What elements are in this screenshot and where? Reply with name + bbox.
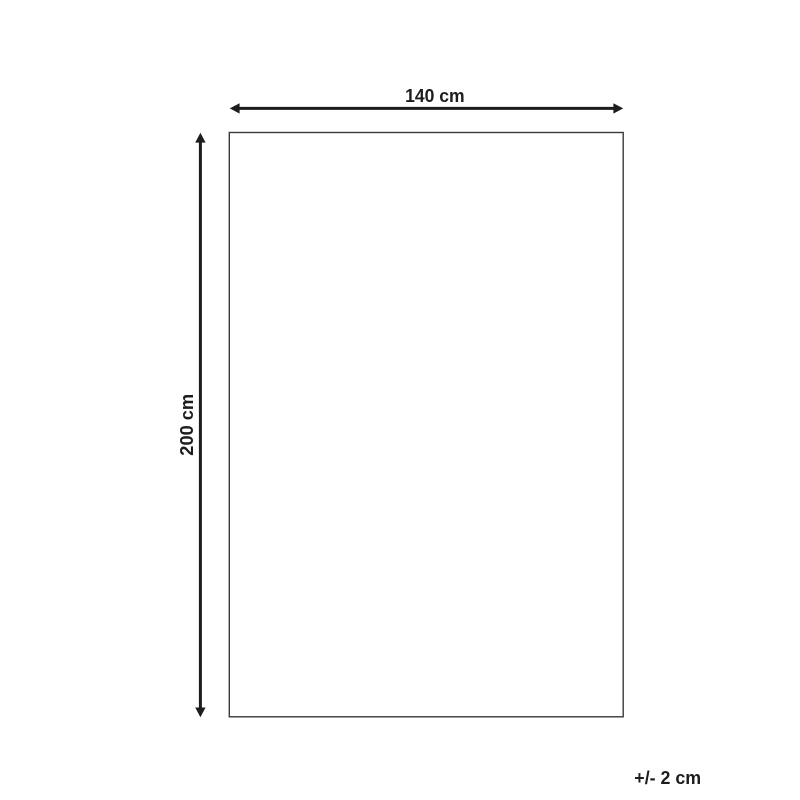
svg-text:200 cm: 200 cm [176, 394, 197, 456]
svg-text:+/- 2 cm: +/- 2 cm [634, 767, 701, 788]
svg-text:140 cm: 140 cm [405, 85, 465, 106]
